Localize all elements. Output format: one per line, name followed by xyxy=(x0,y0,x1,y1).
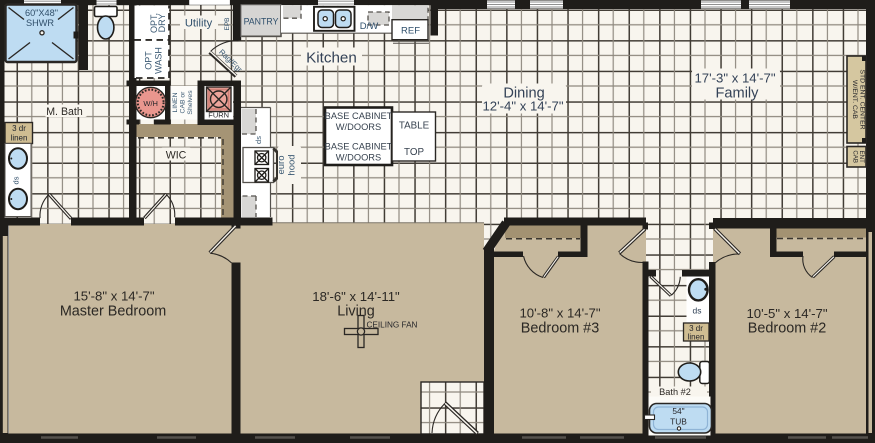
svg-text:W/ENT. CAB: W/ENT. CAB xyxy=(851,80,858,119)
svg-text:3 dr: 3 dr xyxy=(12,124,26,133)
svg-text:Shelves: Shelves xyxy=(187,90,194,115)
svg-text:ds: ds xyxy=(12,176,21,184)
svg-text:Kitchen: Kitchen xyxy=(306,50,357,67)
svg-text:54": 54" xyxy=(672,406,684,416)
svg-text:ds: ds xyxy=(254,136,263,144)
svg-text:W/H: W/H xyxy=(143,99,158,108)
svg-text:10'-8" x 14'-7": 10'-8" x 14'-7" xyxy=(519,306,600,321)
svg-text:STD ENT. CENTER: STD ENT. CENTER xyxy=(859,69,866,129)
svg-text:15'-8" x 14'-7": 15'-8" x 14'-7" xyxy=(73,289,154,304)
svg-text:PANTRY: PANTRY xyxy=(244,17,279,27)
svg-text:linen: linen xyxy=(688,333,705,342)
svg-text:10'-5" x 14'-7": 10'-5" x 14'-7" xyxy=(746,306,827,321)
svg-text:LINEN: LINEN xyxy=(172,92,179,112)
svg-text:Utility: Utility xyxy=(185,18,213,30)
svg-text:Bedroom #2: Bedroom #2 xyxy=(748,321,826,337)
svg-text:OPT: OPT xyxy=(144,51,154,70)
svg-text:SHWR: SHWR xyxy=(26,18,54,28)
svg-text:Master Bedroom: Master Bedroom xyxy=(60,304,166,320)
svg-text:hood: hood xyxy=(287,154,298,175)
svg-text:60"X48": 60"X48" xyxy=(25,8,58,18)
svg-text:18'-6" x 14'-11": 18'-6" x 14'-11" xyxy=(312,289,400,304)
svg-text:euro: euro xyxy=(276,155,287,174)
svg-text:12'-4" x 14'-7": 12'-4" x 14'-7" xyxy=(482,99,563,114)
svg-text:REF: REF xyxy=(401,26,420,37)
svg-text:Bedroom #3: Bedroom #3 xyxy=(521,321,599,337)
svg-text:W/DOORS: W/DOORS xyxy=(336,153,381,163)
svg-text:WIC: WIC xyxy=(166,150,187,162)
svg-text:17'-3" x 14'-7": 17'-3" x 14'-7" xyxy=(694,71,775,86)
svg-text:Family: Family xyxy=(716,86,760,102)
svg-text:EPB: EPB xyxy=(224,17,231,30)
svg-text:DRY: DRY xyxy=(157,14,167,33)
svg-text:M. Bath: M. Bath xyxy=(46,106,83,118)
svg-text:TUB: TUB xyxy=(670,417,687,427)
svg-text:CAB or: CAB or xyxy=(180,91,187,114)
svg-text:WASH: WASH xyxy=(154,47,164,74)
svg-text:ds: ds xyxy=(693,306,702,316)
svg-text:TOP: TOP xyxy=(404,147,424,158)
svg-text:Bath #2: Bath #2 xyxy=(659,387,691,397)
svg-text:D/W: D/W xyxy=(360,21,379,32)
svg-text:CAB: CAB xyxy=(852,150,859,163)
svg-text:BASE CABINET: BASE CABINET xyxy=(325,142,393,152)
svg-text:BASE CABINET: BASE CABINET xyxy=(325,111,393,121)
svg-text:linen: linen xyxy=(11,134,28,143)
svg-text:TABLE: TABLE xyxy=(399,121,430,132)
svg-text:FURN: FURN xyxy=(208,111,229,120)
svg-text:W/DOORS: W/DOORS xyxy=(336,122,381,132)
svg-text:Living: Living xyxy=(337,304,375,320)
